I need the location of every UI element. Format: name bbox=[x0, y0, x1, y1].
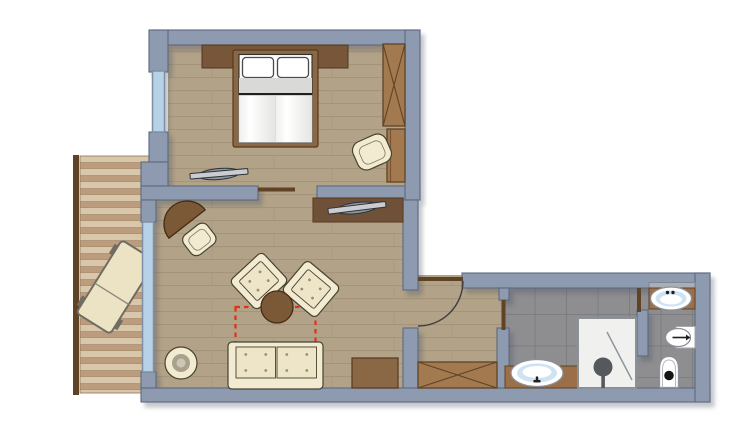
bedroom-window bbox=[153, 71, 165, 132]
wall-living-right-upper bbox=[403, 200, 418, 290]
wall-bedroom-left-flare bbox=[141, 162, 168, 186]
shower bbox=[578, 318, 636, 388]
wc-washbasin bbox=[651, 287, 692, 310]
faucet-icon bbox=[666, 291, 669, 294]
floor-plan-drawing bbox=[0, 0, 754, 435]
wall-wing-right bbox=[695, 273, 710, 402]
wall-bedroom-left-upper bbox=[149, 30, 168, 72]
bed-sheet-band bbox=[239, 78, 312, 93]
wall-living-right-lower bbox=[403, 328, 418, 390]
built-in-closet bbox=[418, 362, 497, 388]
pillow-right bbox=[278, 58, 309, 78]
floor-plan bbox=[0, 0, 754, 435]
duvet-left bbox=[239, 95, 276, 142]
shower-column-icon bbox=[594, 358, 613, 377]
passage-floor bbox=[403, 290, 418, 328]
wall-bedroom-right bbox=[405, 30, 420, 200]
duvet-right bbox=[276, 95, 313, 142]
toilet bbox=[660, 357, 679, 388]
sliding-door-bedroom bbox=[258, 188, 295, 192]
side-stool bbox=[165, 347, 197, 379]
wall-living-left-lower bbox=[141, 372, 156, 388]
balcony-glass-door bbox=[143, 222, 154, 372]
wall-divider-left bbox=[141, 186, 258, 200]
washbasin bbox=[511, 360, 563, 387]
wall-bedroom-left-lower bbox=[149, 132, 168, 162]
bathroom-door-leaf bbox=[502, 300, 506, 330]
entrance-hall bbox=[418, 362, 497, 388]
pillow-left bbox=[243, 58, 274, 78]
bed-sheet-line bbox=[239, 93, 312, 95]
sofa bbox=[228, 342, 323, 389]
wc-door-leaf bbox=[637, 288, 641, 312]
wall-bottom bbox=[141, 388, 710, 402]
lowboard bbox=[352, 358, 398, 388]
balcony-railing bbox=[73, 155, 79, 395]
coffee-table bbox=[261, 291, 293, 323]
wall-wc-stub bbox=[637, 310, 648, 356]
wall-bedroom-top bbox=[153, 30, 420, 45]
entrance-door-leaf bbox=[418, 277, 463, 281]
wall-bath-door-stub bbox=[499, 288, 509, 300]
wall-living-left-upper bbox=[141, 200, 156, 222]
wardrobe bbox=[383, 44, 405, 126]
